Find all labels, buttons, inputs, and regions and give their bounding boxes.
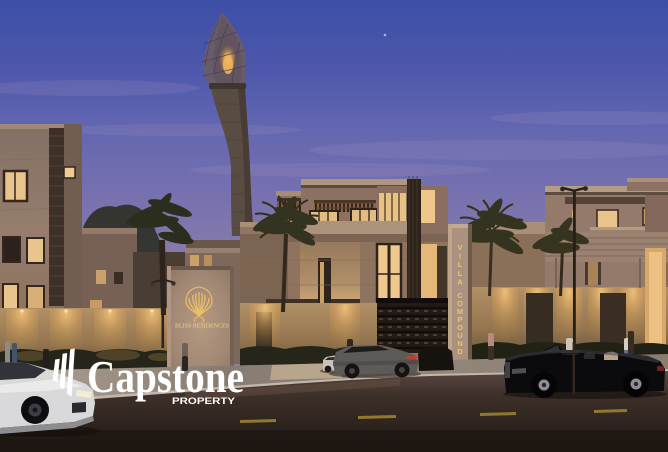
svg-text:D: D [457,347,463,356]
svg-text:Capstone: Capstone [87,352,244,402]
svg-text:BLISS RESIDENCES: BLISS RESIDENCES [175,323,229,330]
svg-text:PROPERTY: PROPERTY [172,396,236,407]
svg-text:A: A [457,277,463,286]
